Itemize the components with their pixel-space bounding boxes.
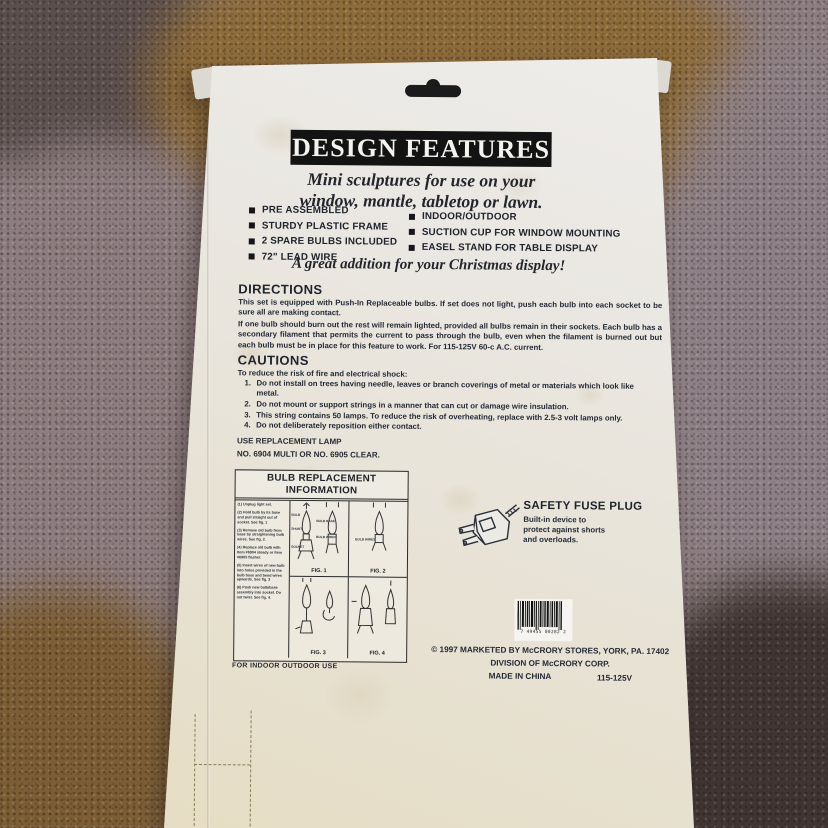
feature-label: STURDY PLASTIC FRAME	[262, 220, 388, 232]
bulb-diagram-icon	[349, 501, 408, 568]
caution-text: Do not deliberately reposition either co…	[256, 421, 656, 435]
replacement-lamp-line: USE REPLACEMENT LAMP	[237, 436, 342, 446]
footer-voltage: 115-125V	[597, 673, 632, 682]
feature-item: INDOOR/OUTDOOR	[409, 211, 659, 224]
figure-caption: FIG. 2	[349, 568, 407, 575]
printed-artwork: DESIGN FEATURES Mini sculptures for use …	[0, 0, 828, 828]
square-bullet-icon	[249, 207, 255, 213]
figure-label: BULB WIRES	[355, 537, 375, 541]
bulb-step: (4) Replace old bulb with Item #6904 ste…	[237, 546, 287, 561]
bulb-step: (6) Push new bulb/base assembly into soc…	[237, 586, 287, 601]
bulb-replacement-box: BULB REPLACEMENT INFORMATION (1) Unplug …	[233, 469, 409, 663]
caution-number: 3.	[244, 410, 256, 420]
figure-label: BULB WIRES	[316, 535, 336, 539]
replacement-lamp-numbers: NO. 6904 MULTI OR NO. 6905 CLEAR.	[237, 449, 380, 459]
bulb-step: (1) Unplug light set.	[237, 502, 287, 507]
feature-label: INDOOR/OUTDOOR	[422, 211, 517, 223]
feature-label: 2 SPARE BULBS INCLUDED	[262, 236, 397, 248]
feature-item: EASEL STAND FOR TABLE DISPLAY	[409, 242, 659, 255]
bulb-box-steps: (1) Unplug light set. (2) Hold bulb by i…	[234, 500, 290, 657]
bulb-box-figures: BULB SHUNT SOCKET BULB BASE BULB WIRES F…	[289, 501, 407, 659]
bulb-diagram-icon	[290, 501, 349, 568]
figure-caption: FIG. 1	[290, 568, 348, 575]
fuse-plug-icon	[448, 500, 521, 559]
bulb-step: (3) Remove old bulb from base by straigh…	[237, 528, 287, 543]
feature-label: PRE ASSEMBLED	[262, 205, 349, 217]
fuse-heading: SAFETY FUSE PLUG	[523, 500, 642, 513]
figure-caption: FIG. 3	[289, 650, 347, 657]
footer-division: DIVISION OF McCRORY CORP.	[427, 658, 673, 669]
caution-text: Do not install on trees having needle, l…	[256, 378, 656, 402]
bulb-box-title: BULB REPLACEMENT INFORMATION	[235, 470, 407, 501]
fuse-body: Built-in device to protect against short…	[523, 515, 605, 546]
feature-item: STURDY PLASTIC FRAME	[249, 220, 419, 232]
feature-label: SUCTION CUP FOR WINDOW MOUNTING	[422, 227, 621, 240]
directions-heading: DIRECTIONS	[238, 281, 322, 297]
feature-item: 2 SPARE BULBS INCLUDED	[249, 236, 419, 248]
barcode: 7 49455 00282 2	[514, 599, 572, 642]
directions-text: This set is equipped with Push-In Replac…	[238, 297, 662, 355]
square-bullet-icon	[409, 213, 415, 219]
figure-4-cell: FIG. 4	[348, 577, 407, 659]
figure-label: BULB BASE	[316, 519, 335, 523]
figure-3-cell: FIG. 3	[289, 577, 349, 659]
cautions-intro: To reduce the risk of fire and electrica…	[238, 368, 408, 378]
bulb-step: (5) Insert wires of new bulb into holes …	[237, 563, 287, 583]
barcode-digits: 7 49455 00282 2	[517, 630, 569, 635]
barcode-bars-icon	[517, 601, 563, 630]
caution-number: 2.	[244, 399, 256, 409]
feature-list-right: INDOOR/OUTDOOR SUCTION CUP FOR WINDOW MO…	[409, 211, 659, 260]
feature-label: EASEL STAND FOR TABLE DISPLAY	[422, 242, 598, 255]
feature-item: SUCTION CUP FOR WINDOW MOUNTING	[409, 226, 659, 239]
bulb-diagram-icon	[348, 577, 407, 650]
figure-2-cell: BULB WIRES FIG. 2	[349, 501, 408, 578]
perforation-line	[250, 710, 252, 826]
caution-number: 1.	[244, 378, 256, 399]
figure-label: SHUNT	[291, 527, 302, 531]
feature-item: PRE ASSEMBLED	[249, 204, 419, 216]
bulb-step: (2) Hold bulb by its base and pull strai…	[237, 510, 287, 525]
cautions-list: 1.Do not install on trees having needle,…	[244, 378, 656, 435]
promo-line: A great addition for your Christmas disp…	[268, 256, 588, 276]
cautions-heading: CAUTIONS	[238, 352, 309, 368]
square-bullet-icon	[249, 223, 255, 229]
card-face: DESIGN FEATURES Mini sculptures for use …	[0, 0, 828, 828]
perforation-line	[194, 764, 250, 765]
square-bullet-icon	[409, 245, 415, 251]
caution-item: 1.Do not install on trees having needle,…	[244, 378, 656, 402]
square-bullet-icon	[249, 254, 255, 260]
square-bullet-icon	[409, 229, 415, 235]
figure-caption: FIG. 4	[348, 650, 406, 657]
banner-title: DESIGN FEATURES	[292, 132, 550, 164]
directions-paragraph: This set is equipped with Push-In Replac…	[238, 297, 662, 322]
bulb-box-grid: (1) Unplug light set. (2) Hold bulb by i…	[234, 500, 407, 658]
figure-label: BULB	[291, 513, 300, 517]
package-card: DESIGN FEATURES Mini sculptures for use …	[0, 0, 828, 828]
directions-paragraph: If one bulb should burn out the rest wil…	[238, 319, 662, 354]
caution-item: 4.Do not deliberately reposition either …	[244, 421, 656, 435]
perforation-line	[194, 714, 196, 826]
figure-1-cell: BULB SHUNT SOCKET BULB BASE BULB WIRES F…	[290, 501, 350, 578]
photo-scene: DESIGN FEATURES Mini sculptures for use …	[0, 0, 828, 828]
bulb-diagram-icon	[289, 577, 348, 650]
caution-number: 4.	[244, 421, 256, 431]
hang-slot-icon	[405, 85, 461, 97]
figure-label: SOCKET	[291, 545, 304, 549]
design-features-banner: DESIGN FEATURES	[290, 130, 551, 167]
indoor-outdoor-note: FOR INDOOR OUTDOOR USE	[232, 662, 337, 670]
square-bullet-icon	[249, 238, 255, 244]
footer-marketed-by: © 1997 MARKETED BY McCRORY STORES, YORK,…	[427, 645, 673, 656]
